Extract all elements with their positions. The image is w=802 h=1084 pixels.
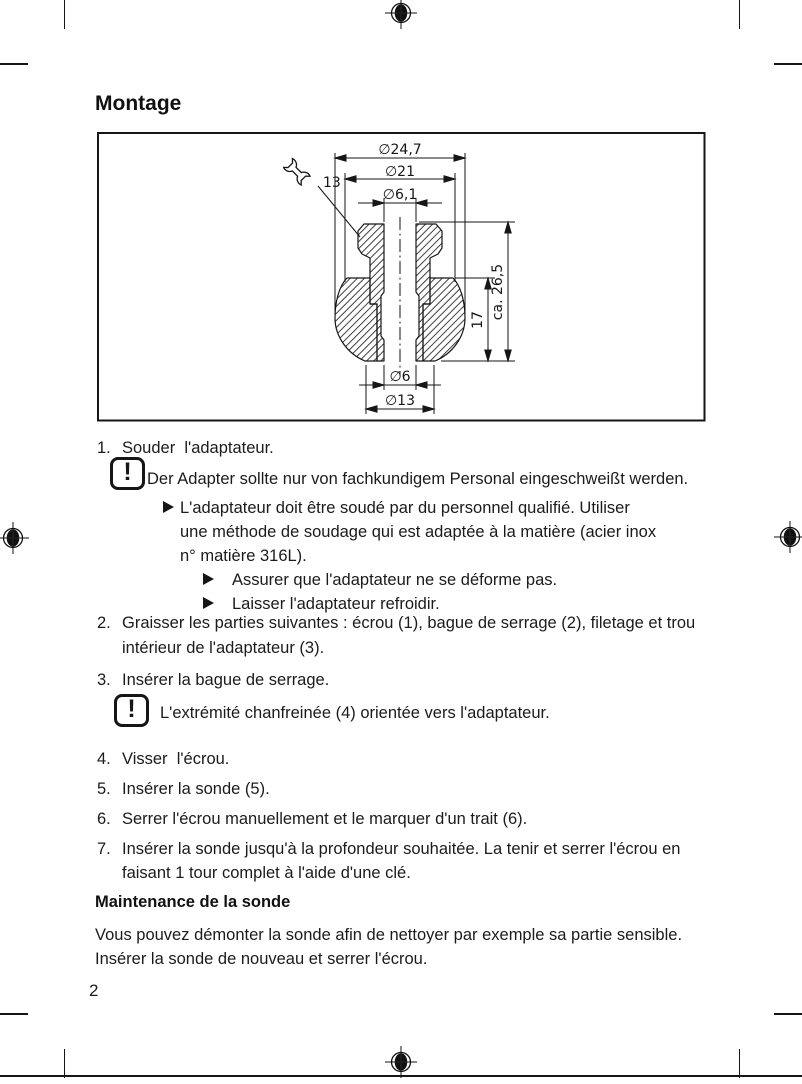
registration-mark-bottom bbox=[384, 1045, 418, 1079]
crop-mark-left-horizontal-top bbox=[0, 63, 28, 65]
warning-icon: ! bbox=[110, 457, 145, 490]
dim-label-hole-bottom-diameter: ∅6 bbox=[389, 369, 410, 385]
exclamation-glyph: ! bbox=[123, 460, 131, 485]
step-6-text: Serrer l'écrou manuellement et le marque… bbox=[122, 807, 527, 831]
dimension-labels: ∅24,7 ∅21 ∅6,1 ∅6 ∅13 17 ca. 26,5 13 bbox=[323, 142, 506, 409]
step-1-number: 1. bbox=[97, 436, 111, 460]
maintenance-text-line-2: Insérer la sonde de nouveau et serrer l'… bbox=[95, 947, 427, 971]
dim-label-hole-top-diameter: ∅6,1 bbox=[383, 187, 417, 203]
step-1-text: Souder l'adaptateur. bbox=[122, 436, 274, 460]
technical-drawing: ∅24,7 ∅21 ∅6,1 ∅6 ∅13 17 ca. 26,5 13 bbox=[97, 132, 706, 422]
maintenance-text-line-1: Vous pouvez démonter la sonde afin de ne… bbox=[95, 923, 682, 947]
note-1-bullet-line-2: une méthode de soudage qui est adaptée à… bbox=[180, 520, 656, 544]
bullet-triangle-icon bbox=[203, 597, 214, 609]
bullet-triangle-icon bbox=[163, 501, 174, 513]
crop-mark-top-right-vertical bbox=[739, 0, 740, 29]
step-3-text: Insérer la bague de serrage. bbox=[122, 668, 329, 692]
wrench-icon bbox=[283, 158, 310, 185]
manual-page: { "title": "Montage", "page_number": "2"… bbox=[0, 0, 802, 1078]
step-4-number: 4. bbox=[97, 747, 111, 771]
crop-mark-bottom-left-vertical bbox=[64, 1049, 65, 1078]
step-2-text-line-1: Graisser les parties suivantes : écrou (… bbox=[122, 611, 695, 635]
crop-mark-left-horizontal-bottom bbox=[0, 1013, 28, 1015]
wrench-size-label: 13 bbox=[323, 175, 341, 191]
figure-box: ∅24,7 ∅21 ∅6,1 ∅6 ∅13 17 ca. 26,5 13 bbox=[97, 132, 706, 422]
step-2-number: 2. bbox=[97, 611, 111, 635]
step-5-text: Insérer la sonde (5). bbox=[122, 777, 270, 801]
dim-label-outer-diameter: ∅24,7 bbox=[378, 142, 421, 158]
step-4-text: Visser l'écrou. bbox=[122, 747, 229, 771]
note-1-bullet-line-3: n° matière 316L). bbox=[180, 544, 307, 568]
warning-icon: ! bbox=[114, 694, 149, 727]
crop-mark-right-horizontal-bottom bbox=[774, 1013, 802, 1015]
exclamation-glyph: ! bbox=[127, 697, 135, 722]
step-5-number: 5. bbox=[97, 777, 111, 801]
page-title: Montage bbox=[95, 92, 181, 116]
step-3-number: 3. bbox=[97, 668, 111, 692]
registration-mark-top bbox=[384, 0, 418, 30]
note-1-sub-bullet-1: Assurer que l'adaptateur ne se déforme p… bbox=[232, 568, 557, 592]
note-1-bullet-line-1: L'adaptateur doit être soudé par du pers… bbox=[180, 496, 630, 520]
registration-mark-left bbox=[0, 521, 30, 555]
step-7-text-line-2: faisant 1 tour complet à l'aide d'une cl… bbox=[122, 861, 411, 885]
dim-label-mid-diameter: ∅21 bbox=[385, 164, 415, 180]
registration-mark-right bbox=[773, 520, 802, 554]
dim-label-total-height: ca. 26,5 bbox=[490, 264, 506, 320]
step-7-number: 7. bbox=[97, 837, 111, 861]
maintenance-heading: Maintenance de la sonde bbox=[95, 893, 290, 912]
step-2-text-line-2: intérieur de l'adaptateur (3). bbox=[122, 636, 324, 660]
bullet-triangle-icon bbox=[203, 573, 214, 585]
dim-label-sphere-height: 17 bbox=[470, 311, 486, 329]
wrench-leader-line bbox=[318, 186, 360, 237]
step-7-text-line-1: Insérer la sonde jusqu'à la profondeur s… bbox=[122, 837, 680, 861]
note-1-german-line: Der Adapter sollte nur von fachkundigem … bbox=[147, 467, 688, 491]
step-6-number: 6. bbox=[97, 807, 111, 831]
crop-mark-right-horizontal-top bbox=[774, 63, 802, 65]
dim-label-stub-diameter: ∅13 bbox=[385, 393, 415, 409]
crop-mark-bottom-right-vertical bbox=[739, 1049, 740, 1078]
note-2-text: L'extrémité chanfreinée (4) orientée ver… bbox=[160, 701, 550, 725]
page-number: 2 bbox=[89, 981, 98, 1001]
crop-mark-top-left-vertical bbox=[64, 0, 65, 29]
